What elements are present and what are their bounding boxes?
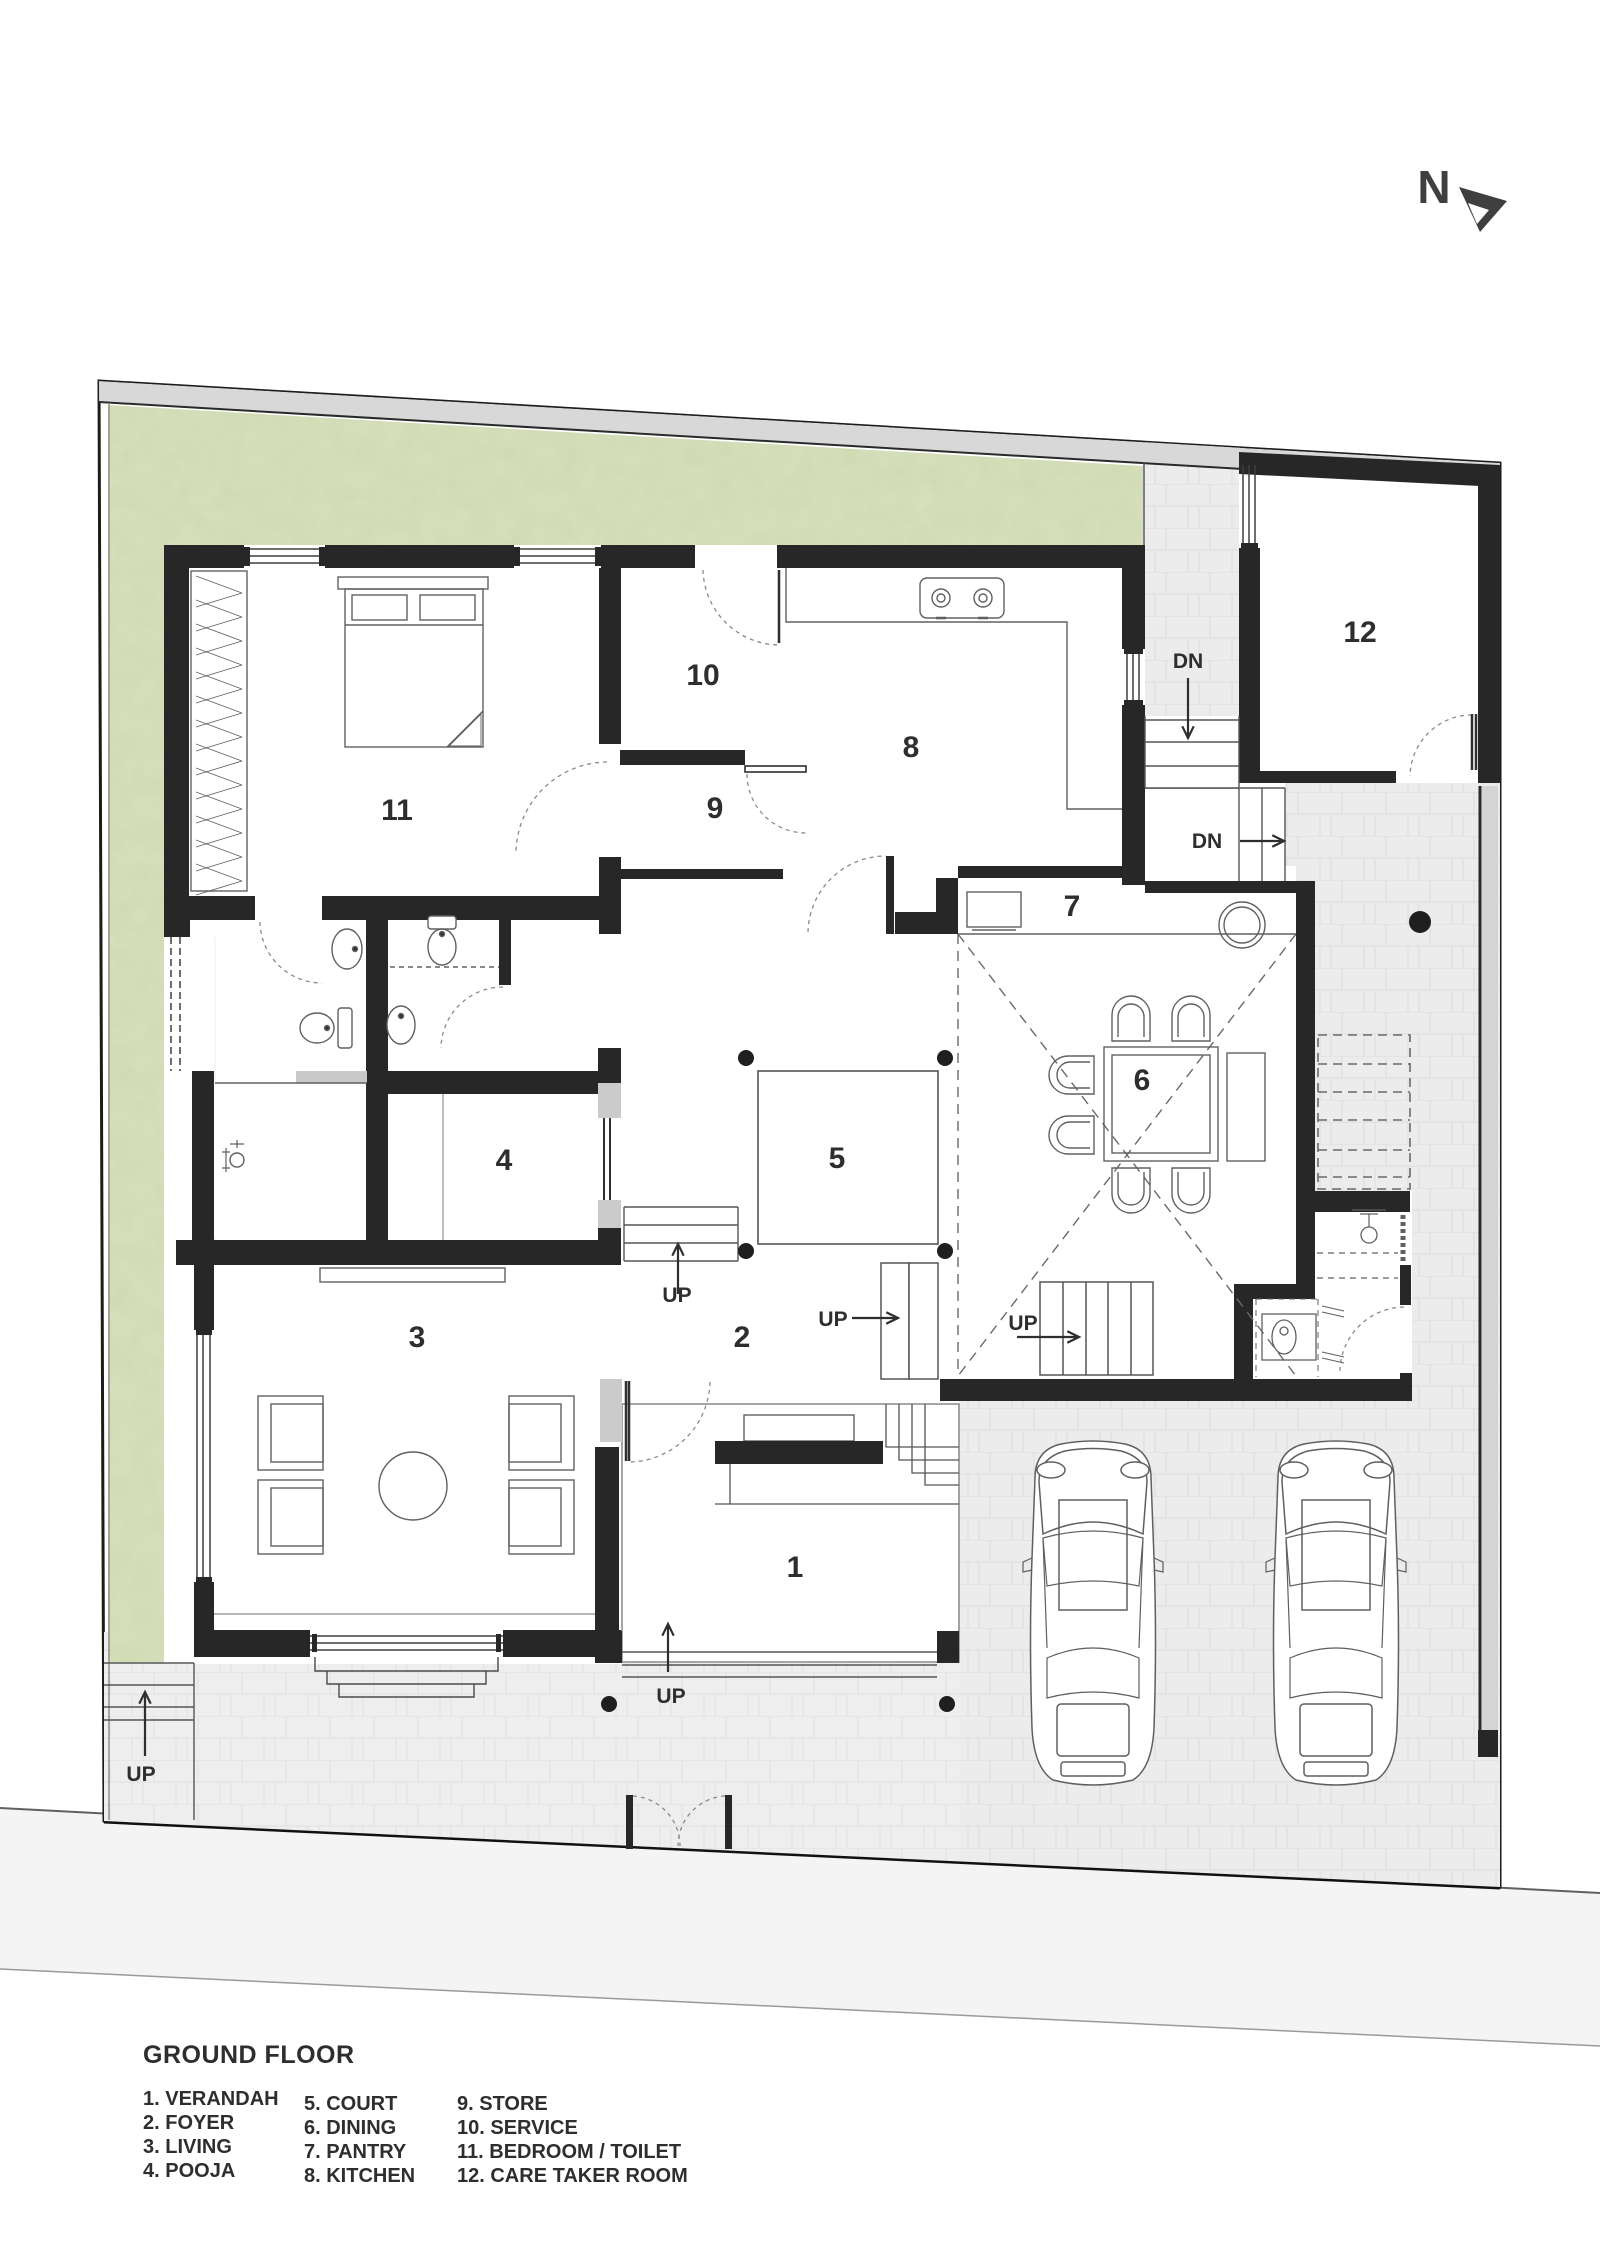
svg-text:3. LIVING: 3. LIVING: [143, 2136, 232, 2158]
svg-text:DN: DN: [1173, 650, 1203, 673]
svg-text:6: 6: [1134, 1064, 1151, 1097]
svg-text:8. KITCHEN: 8. KITCHEN: [304, 2165, 415, 2187]
svg-text:2: 2: [734, 1321, 751, 1354]
svg-text:3: 3: [409, 1321, 426, 1354]
svg-text:5: 5: [829, 1142, 846, 1175]
svg-text:4: 4: [496, 1144, 513, 1177]
svg-text:11: 11: [381, 794, 413, 827]
svg-text:12. CARE TAKER ROOM: 12. CARE TAKER ROOM: [457, 2165, 688, 2187]
svg-text:UP: UP: [126, 1763, 155, 1786]
svg-text:10: 10: [686, 659, 719, 692]
svg-text:7: 7: [1064, 890, 1081, 923]
svg-text:8: 8: [903, 731, 920, 764]
svg-text:5. COURT: 5. COURT: [304, 2093, 397, 2115]
svg-text:11. BEDROOM / TOILET: 11. BEDROOM / TOILET: [457, 2141, 681, 2163]
svg-text:9. STORE: 9. STORE: [457, 2093, 548, 2115]
svg-text:GROUND FLOOR: GROUND FLOOR: [143, 2041, 355, 2069]
svg-text:UP: UP: [656, 1685, 685, 1708]
svg-text:12: 12: [1343, 616, 1376, 649]
svg-text:UP: UP: [1008, 1312, 1037, 1335]
svg-text:UP: UP: [818, 1308, 847, 1331]
svg-text:7. PANTRY: 7. PANTRY: [304, 2141, 407, 2163]
svg-text:N: N: [1417, 161, 1450, 213]
svg-text:2. FOYER: 2. FOYER: [143, 2112, 235, 2134]
svg-text:9: 9: [707, 792, 724, 825]
svg-text:1. VERANDAH: 1. VERANDAH: [143, 2088, 279, 2110]
svg-text:6. DINING: 6. DINING: [304, 2117, 396, 2139]
svg-text:10. SERVICE: 10. SERVICE: [457, 2117, 578, 2139]
svg-text:DN: DN: [1192, 830, 1222, 853]
svg-text:4. POOJA: 4. POOJA: [143, 2160, 235, 2182]
svg-text:1: 1: [787, 1551, 804, 1584]
